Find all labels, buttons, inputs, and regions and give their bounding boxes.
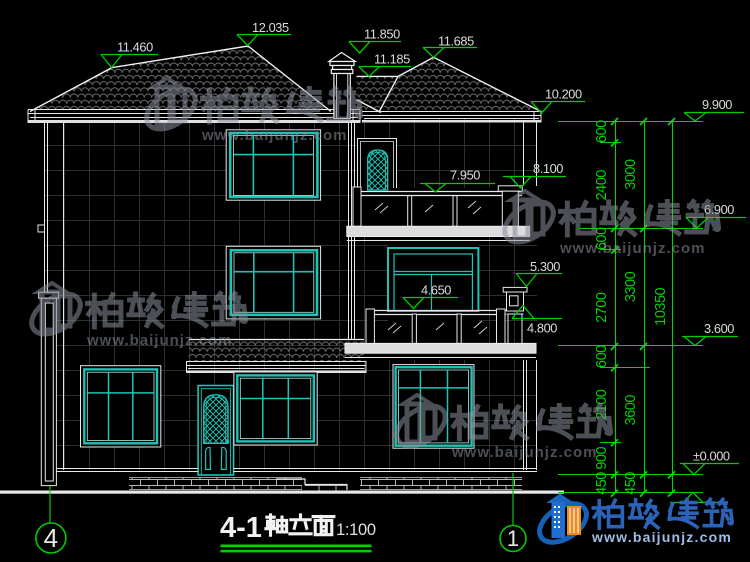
svg-text:4: 4 xyxy=(44,523,58,553)
svg-text:9.900: 9.900 xyxy=(702,97,732,112)
svg-text:11.685: 11.685 xyxy=(438,33,474,48)
svg-text:450: 450 xyxy=(623,472,639,495)
svg-text:450: 450 xyxy=(594,472,610,495)
svg-text:4.800: 4.800 xyxy=(527,321,557,336)
svg-text:8.100: 8.100 xyxy=(533,161,563,176)
svg-text:5.300: 5.300 xyxy=(530,259,560,274)
svg-text:10.200: 10.200 xyxy=(545,87,582,102)
svg-text:1:100: 1:100 xyxy=(336,521,376,539)
svg-text:12.035: 12.035 xyxy=(252,20,289,35)
svg-text:3.600: 3.600 xyxy=(704,321,734,336)
svg-text:3600: 3600 xyxy=(623,395,639,426)
svg-text:2400: 2400 xyxy=(594,170,610,201)
svg-text:1: 1 xyxy=(507,526,519,551)
svg-text:4-1: 4-1 xyxy=(220,512,262,544)
svg-text:www.baijunjz.com: www.baijunjz.com xyxy=(591,529,732,545)
svg-text:11.185: 11.185 xyxy=(374,52,410,67)
svg-text:7.950: 7.950 xyxy=(450,168,480,183)
svg-text:10350: 10350 xyxy=(653,287,669,325)
svg-text:4.650: 4.650 xyxy=(421,283,451,298)
svg-text:11.460: 11.460 xyxy=(117,40,153,55)
svg-text:3300: 3300 xyxy=(623,271,639,302)
svg-text:3000: 3000 xyxy=(623,159,639,190)
svg-text:600: 600 xyxy=(594,345,610,368)
svg-text:2700: 2700 xyxy=(594,292,610,323)
svg-text:11.850: 11.850 xyxy=(364,27,400,42)
svg-text:±0.000: ±0.000 xyxy=(693,449,730,464)
svg-text:600: 600 xyxy=(594,120,610,143)
